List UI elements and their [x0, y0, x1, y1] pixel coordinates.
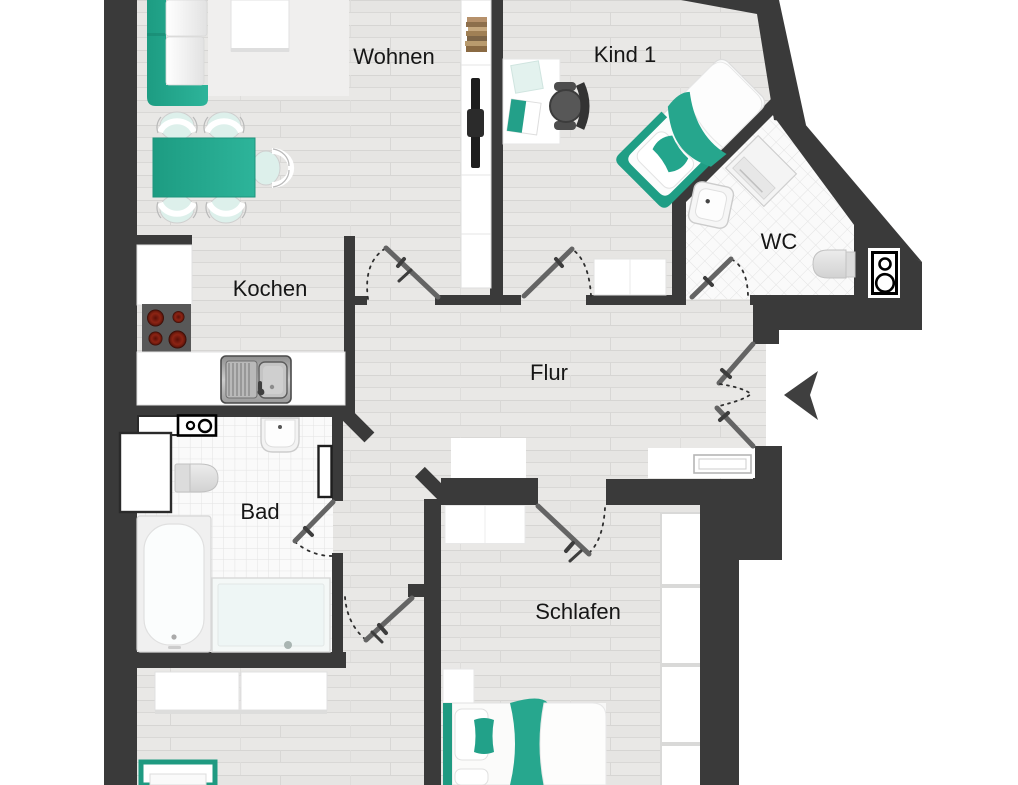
svg-text:Schlafen: Schlafen	[535, 599, 621, 624]
svg-text:Kind 1: Kind 1	[594, 42, 656, 67]
svg-text:Wohnen: Wohnen	[353, 44, 435, 69]
svg-text:Flur: Flur	[530, 360, 568, 385]
svg-text:Kochen: Kochen	[233, 276, 308, 301]
svg-text:Bad: Bad	[240, 499, 279, 524]
svg-text:WC: WC	[761, 229, 798, 254]
